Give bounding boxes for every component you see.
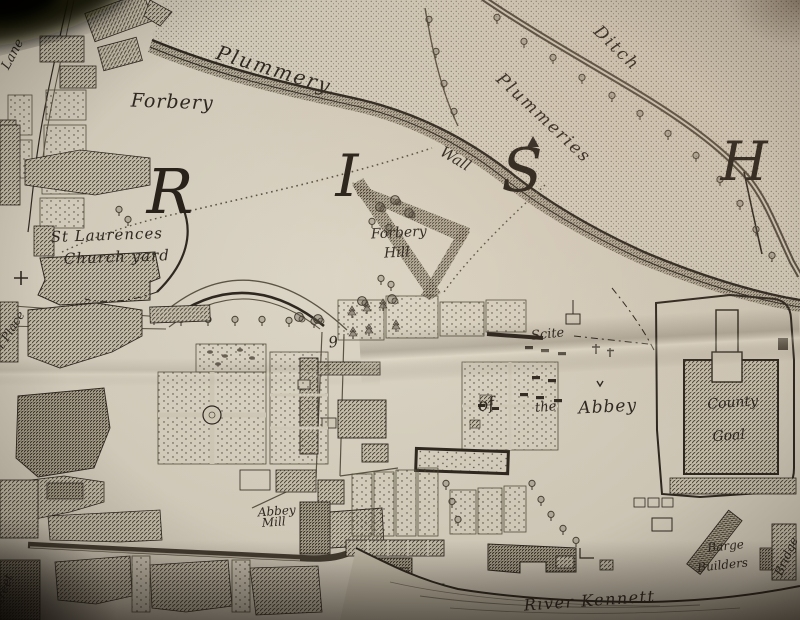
photo-artifacts (0, 0, 800, 620)
engraved-map: R I S H Plummery Forbery Ditch Plummerie… (0, 0, 800, 620)
map-photograph: R I S H Plummery Forbery Ditch Plummerie… (0, 0, 800, 620)
